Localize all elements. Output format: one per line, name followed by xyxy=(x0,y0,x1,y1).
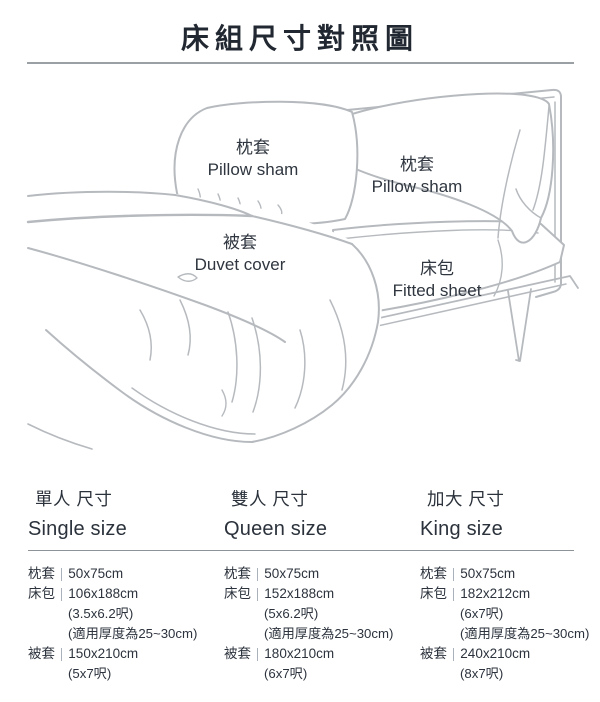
spec-note: (適用厚度為25~30cm) xyxy=(28,624,224,644)
spec-label: 被套 xyxy=(224,644,254,664)
spec-label: 床包 xyxy=(28,584,58,604)
heading-queen-zh: 雙人 尺寸 xyxy=(224,486,420,511)
label-fitted-sheet-en: Fitted sheet xyxy=(393,280,482,302)
label-pillow-sham-right-zh: 枕套 xyxy=(372,154,463,176)
label-duvet-cover: 被套 Duvet cover xyxy=(195,232,286,275)
spec-label: 床包 xyxy=(224,584,254,604)
heading-king: 加大 尺寸 King size xyxy=(420,486,600,541)
spec-value: 50x75cm xyxy=(264,564,319,584)
spec-note: (適用厚度為25~30cm) xyxy=(224,624,420,644)
spec-row-duvet: 被套 240x210cm xyxy=(420,644,600,664)
heading-queen: 雙人 尺寸 Queen size xyxy=(224,486,420,541)
label-pillow-sham-right: 枕套 Pillow sham xyxy=(372,154,463,197)
spec-value: 240x210cm xyxy=(460,644,530,664)
spec-row-fitted: 床包 182x212cm xyxy=(420,584,600,604)
separator-bar xyxy=(453,648,454,661)
duvet xyxy=(27,190,382,449)
spec-label: 床包 xyxy=(420,584,450,604)
size-specs-row: 枕套 50x75cm 床包 106x188cm (3.5x6.2呎) (適用厚度… xyxy=(28,564,588,684)
label-pillow-sham-left-en: Pillow sham xyxy=(208,159,299,181)
separator-bar xyxy=(257,648,258,661)
spec-value: 150x210cm xyxy=(68,644,138,664)
spec-label: 枕套 xyxy=(420,564,450,584)
heading-king-en: King size xyxy=(420,518,600,541)
spec-column-single: 枕套 50x75cm 床包 106x188cm (3.5x6.2呎) (適用厚度… xyxy=(28,564,224,684)
separator-bar xyxy=(257,588,258,601)
bed-illustration: 枕套 Pillow sham 枕套 Pillow sham 被套 Duvet c… xyxy=(0,80,600,472)
page-title: 床組尺寸對照圖 xyxy=(0,17,600,57)
spec-row-fitted: 床包 152x188cm xyxy=(224,584,420,604)
label-fitted-sheet-zh: 床包 xyxy=(393,258,482,280)
spec-value: 152x188cm xyxy=(264,584,334,604)
separator-bar xyxy=(453,588,454,601)
bedding-size-chart-page: 床組尺寸對照圖 xyxy=(0,0,600,702)
spec-row-pillow: 枕套 50x75cm xyxy=(224,564,420,584)
spec-column-queen: 枕套 50x75cm 床包 152x188cm (5x6.2呎) (適用厚度為2… xyxy=(224,564,420,684)
spec-value: 106x188cm xyxy=(68,584,138,604)
heading-queen-en: Queen size xyxy=(224,518,420,541)
separator-bar xyxy=(61,648,62,661)
label-pillow-sham-left-zh: 枕套 xyxy=(208,137,299,159)
spec-note: (適用厚度為25~30cm) xyxy=(420,624,600,644)
spec-column-king: 枕套 50x75cm 床包 182x212cm (6x7呎) (適用厚度為25~… xyxy=(420,564,600,684)
spec-label: 枕套 xyxy=(28,564,58,584)
heading-single-en: Single size xyxy=(28,518,224,541)
spec-row-pillow: 枕套 50x75cm xyxy=(420,564,600,584)
heading-single-zh: 單人 尺寸 xyxy=(28,486,224,511)
bed-line-drawing-svg xyxy=(0,80,600,472)
label-fitted-sheet: 床包 Fitted sheet xyxy=(393,258,482,301)
spec-row-pillow: 枕套 50x75cm xyxy=(28,564,224,584)
spec-value: 182x212cm xyxy=(460,584,530,604)
separator-bar xyxy=(257,568,258,581)
label-duvet-cover-en: Duvet cover xyxy=(195,254,286,276)
spec-value: 180x210cm xyxy=(264,644,334,664)
label-pillow-sham-right-en: Pillow sham xyxy=(372,176,463,198)
label-pillow-sham-left: 枕套 Pillow sham xyxy=(208,137,299,180)
title-divider xyxy=(27,62,574,64)
spec-note: (5x7呎) xyxy=(28,664,224,684)
spec-row-duvet: 被套 150x210cm xyxy=(28,644,224,664)
spec-row-fitted: 床包 106x188cm xyxy=(28,584,224,604)
spec-note: (5x6.2呎) xyxy=(224,604,420,624)
separator-bar xyxy=(61,568,62,581)
spec-label: 被套 xyxy=(28,644,58,664)
separator-bar xyxy=(61,588,62,601)
heading-king-zh: 加大 尺寸 xyxy=(420,486,600,511)
spec-value: 50x75cm xyxy=(460,564,515,584)
heading-single: 單人 尺寸 Single size xyxy=(28,486,224,541)
spec-label: 被套 xyxy=(420,644,450,664)
spec-note: (6x7呎) xyxy=(224,664,420,684)
spec-value: 50x75cm xyxy=(68,564,123,584)
spec-label: 枕套 xyxy=(224,564,254,584)
spec-note: (3.5x6.2呎) xyxy=(28,604,224,624)
spec-row-duvet: 被套 180x210cm xyxy=(224,644,420,664)
section-divider xyxy=(28,550,574,551)
size-headings-row: 單人 尺寸 Single size 雙人 尺寸 Queen size 加大 尺寸… xyxy=(28,486,588,541)
spec-note: (6x7呎) xyxy=(420,604,600,624)
separator-bar xyxy=(453,568,454,581)
label-duvet-cover-zh: 被套 xyxy=(195,232,286,254)
spec-note: (8x7呎) xyxy=(420,664,600,684)
